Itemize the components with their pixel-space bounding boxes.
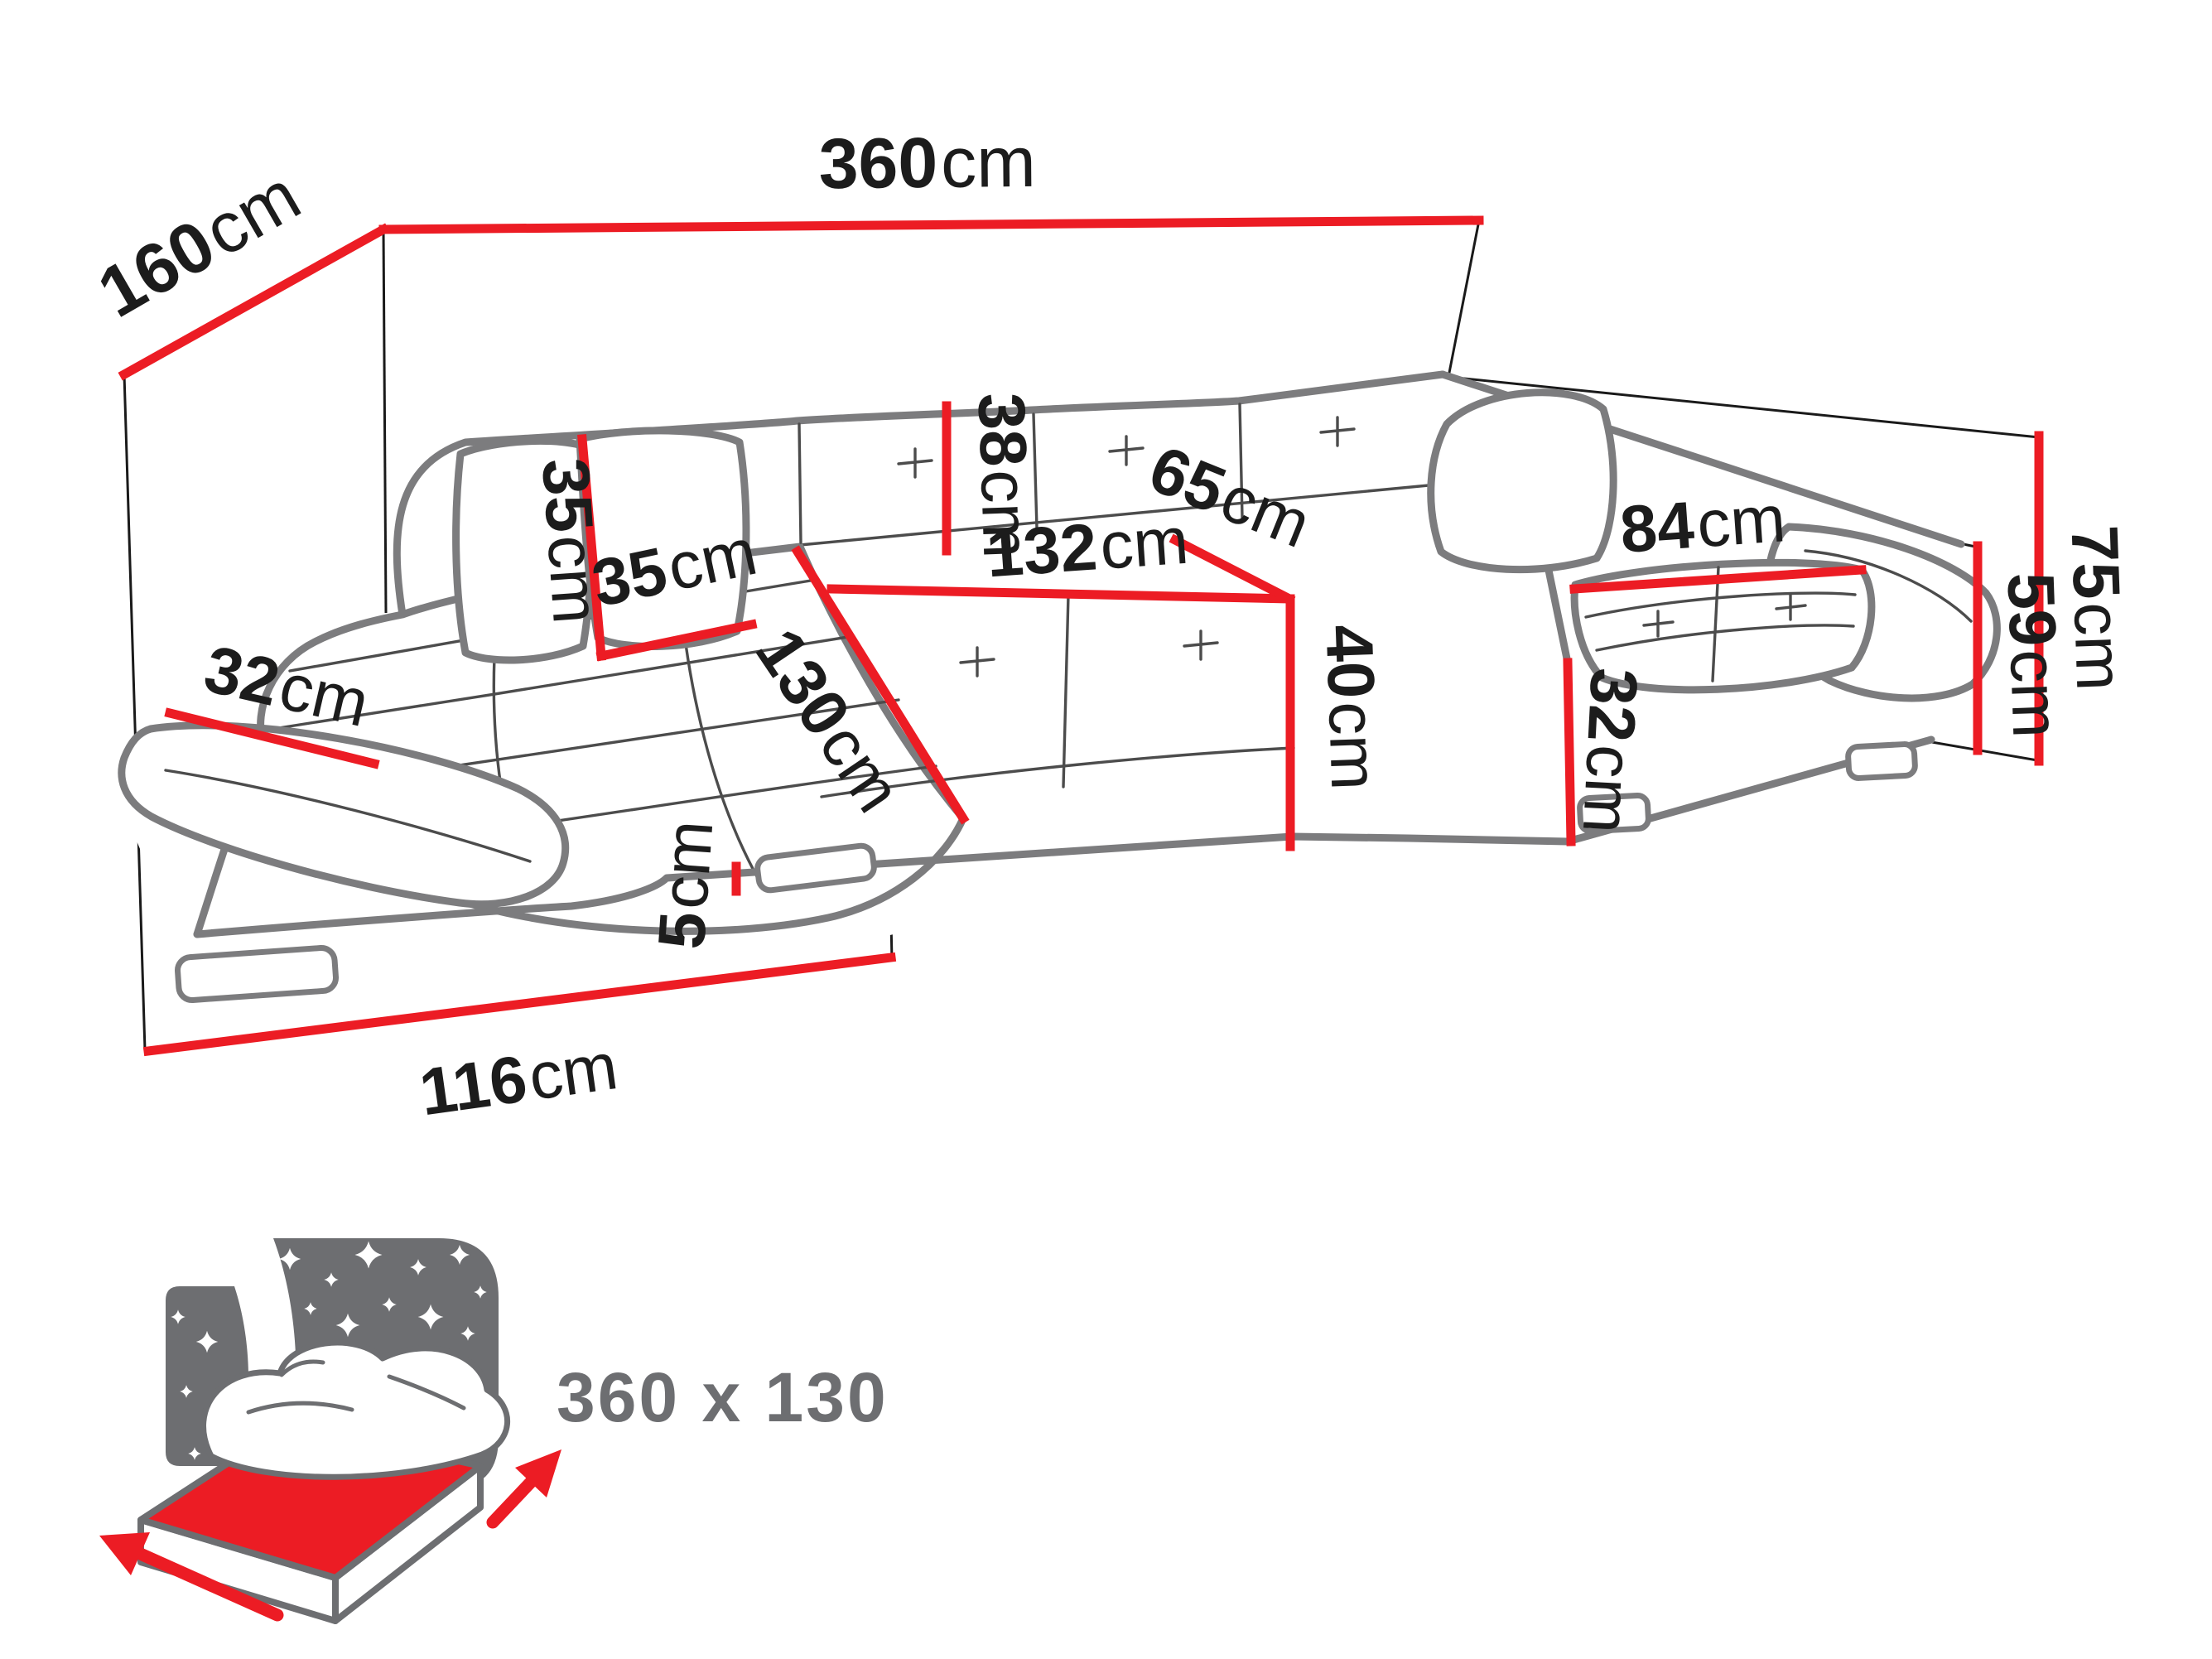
dim-line-total-width — [383, 220, 1479, 229]
sofa-dimension-diagram: 360cm 160cm 35cm 35cm 38cm 132cm 65cm 40… — [0, 0, 2212, 1659]
right-pillow — [1431, 393, 1613, 570]
label-left-chaise-depth: 116cm — [415, 1029, 622, 1129]
label-seat-height: 40cm — [1313, 624, 1392, 792]
label-leg-height: 5cm — [644, 818, 727, 952]
leg-front-left — [176, 947, 336, 1001]
star-icon — [243, 1299, 253, 1309]
leg-right-back — [1848, 744, 1916, 779]
sleeping-area-label: 360 x 130 — [557, 1358, 889, 1436]
sleeping-function-icon: 360 x 130 — [99, 1238, 889, 1621]
label-right-chaise-width: 84cm — [1617, 481, 1787, 567]
sofa-drawing — [122, 374, 2009, 1001]
wall-corner-drop-left — [383, 229, 386, 613]
wall-corner-drop-right — [1448, 220, 1479, 377]
label-total-width: 360cm — [818, 123, 1036, 204]
label-depth-left: 160cm — [85, 156, 313, 333]
label-right-base-height: 32cm — [1569, 666, 1651, 835]
label-middle-seat-width: 132cm — [984, 504, 1191, 591]
label-armrest-height: 59cm — [1994, 571, 2074, 740]
wall-edge-left — [124, 374, 145, 1050]
bedding — [204, 1343, 508, 1477]
